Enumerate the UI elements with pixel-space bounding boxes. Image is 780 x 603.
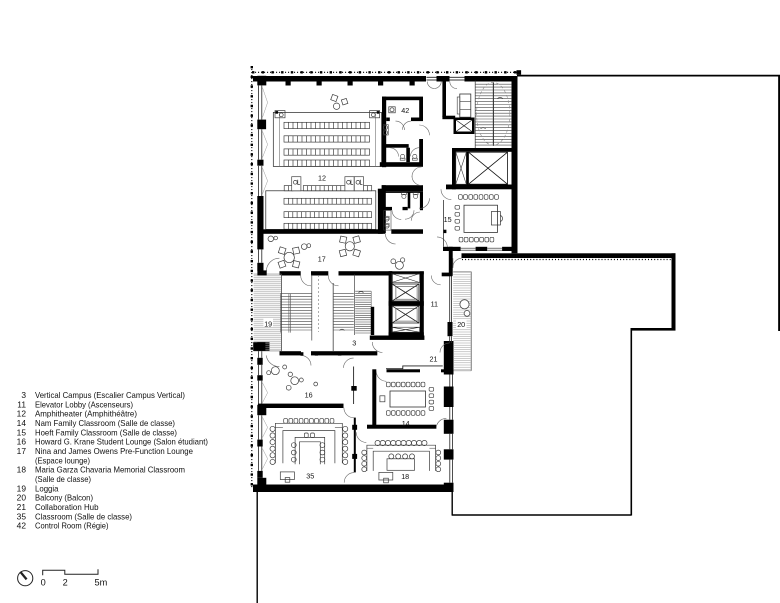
svg-text:2: 2 bbox=[63, 577, 68, 587]
svg-text:18: 18 bbox=[401, 472, 409, 481]
svg-text:17: 17 bbox=[17, 446, 27, 456]
svg-text:35: 35 bbox=[306, 471, 314, 480]
svg-text:5m: 5m bbox=[95, 577, 108, 587]
svg-text:15: 15 bbox=[444, 215, 452, 224]
svg-text:Control Room (Régie): Control Room (Régie) bbox=[35, 521, 109, 531]
svg-text:17: 17 bbox=[318, 254, 326, 263]
svg-text:42: 42 bbox=[17, 521, 27, 531]
svg-text:42: 42 bbox=[401, 106, 409, 115]
svg-text:16: 16 bbox=[305, 391, 313, 400]
svg-text:14: 14 bbox=[402, 419, 410, 428]
svg-text:3: 3 bbox=[352, 339, 356, 348]
svg-text:18: 18 bbox=[17, 465, 27, 475]
svg-text:21: 21 bbox=[430, 355, 438, 364]
svg-text:11: 11 bbox=[431, 299, 438, 308]
svg-text:12: 12 bbox=[318, 174, 326, 183]
svg-text:20: 20 bbox=[457, 320, 465, 329]
svg-text:19: 19 bbox=[264, 319, 272, 328]
svg-text:0: 0 bbox=[41, 577, 46, 587]
